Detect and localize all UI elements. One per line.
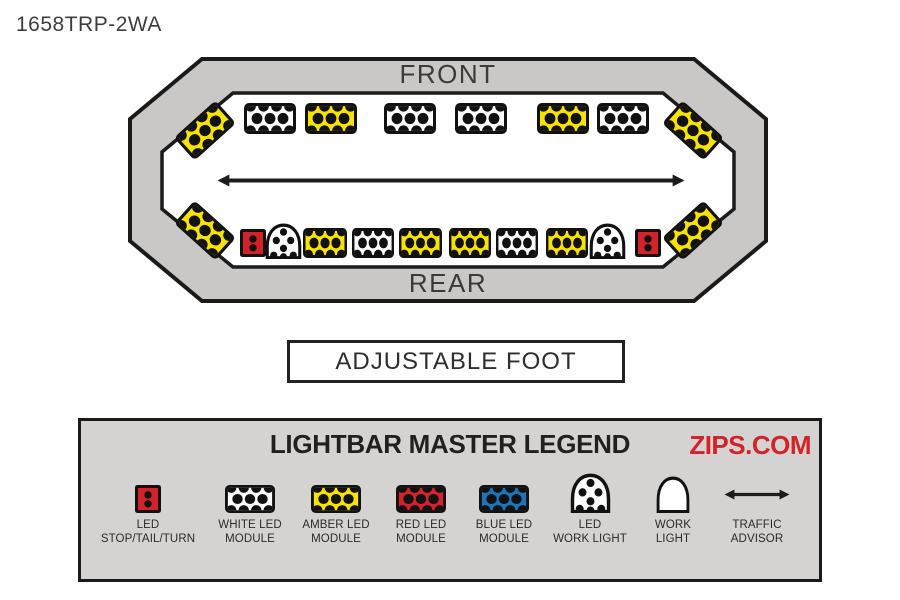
- white-led-module-icon: [384, 103, 436, 134]
- amber-led-module-icon: [311, 485, 361, 513]
- front-label: FRONT: [128, 59, 768, 90]
- adjustable-foot-label: ADJUSTABLE FOOT: [335, 348, 576, 376]
- module-white: [384, 103, 436, 134]
- white-led-module-icon: [496, 228, 538, 258]
- module-amber: [546, 228, 588, 258]
- blue-led-module-icon: [479, 485, 529, 513]
- amber-led-module-icon: [399, 228, 442, 258]
- led-work-light-icon: [265, 223, 302, 259]
- module-amber: [399, 228, 442, 258]
- led-work-light-icon: [589, 223, 626, 259]
- legend-icon-holder: [93, 467, 203, 513]
- stop-tail-turn-icon: [635, 229, 661, 257]
- amber-led-module-icon: [449, 228, 491, 258]
- legend-label-line2: STOP/TAIL/TURN: [93, 532, 203, 546]
- legend-panel: LIGHTBAR MASTER LEGEND ZIPS.COM LEDSTOP/…: [78, 418, 822, 582]
- legend-item-arrow: TRAFFICADVISOR: [702, 467, 812, 546]
- legend-label-line1: LED: [93, 518, 203, 532]
- amber-led-module-icon: [303, 228, 347, 258]
- module-amber: [303, 228, 347, 258]
- zips-brand: ZIPS.COM: [689, 430, 811, 461]
- double-arrow-icon: [217, 174, 685, 187]
- double-arrow-icon: [724, 489, 790, 500]
- module-stop: [635, 229, 661, 257]
- stop-tail-turn-icon: [135, 485, 161, 513]
- module-led_work: [265, 223, 302, 259]
- legend-item-stop: LEDSTOP/TAIL/TURN: [93, 467, 203, 546]
- legend-label-line2: ADVISOR: [702, 532, 812, 546]
- module-white: [244, 103, 296, 134]
- white-led-module-icon: [225, 485, 275, 513]
- model-number: 1658TRP-2WA: [16, 13, 162, 37]
- module-amber: [537, 103, 589, 134]
- amber-led-module-icon: [305, 103, 357, 134]
- white-led-module-icon: [597, 103, 649, 134]
- module-amber: [305, 103, 357, 134]
- module-white: [496, 228, 538, 258]
- module-led_work: [589, 223, 626, 259]
- legend-label-line1: TRAFFIC: [702, 518, 812, 532]
- module-stop: [240, 229, 266, 257]
- red-led-module-icon: [396, 485, 446, 513]
- led-work-light-icon: [570, 473, 611, 513]
- module-white: [597, 103, 649, 134]
- legend-item-label: LEDSTOP/TAIL/TURN: [93, 518, 203, 546]
- legend-item-label: TRAFFICADVISOR: [702, 518, 812, 546]
- traffic-advisor-arrow: [217, 174, 685, 192]
- lightbar-diagram: FRONT REAR: [128, 57, 768, 303]
- white-led-module-icon: [455, 103, 507, 134]
- legend-icon-holder: [702, 467, 812, 513]
- white-led-module-icon: [352, 228, 394, 258]
- adjustable-foot-box: ADJUSTABLE FOOT: [287, 340, 625, 383]
- amber-led-module-icon: [537, 103, 589, 134]
- module-white: [455, 103, 507, 134]
- stop-tail-turn-icon: [240, 229, 266, 257]
- white-led-module-icon: [244, 103, 296, 134]
- module-amber: [449, 228, 491, 258]
- amber-led-module-icon: [546, 228, 588, 258]
- rear-label: REAR: [128, 268, 768, 299]
- module-white: [352, 228, 394, 258]
- work-light-icon: [656, 476, 690, 513]
